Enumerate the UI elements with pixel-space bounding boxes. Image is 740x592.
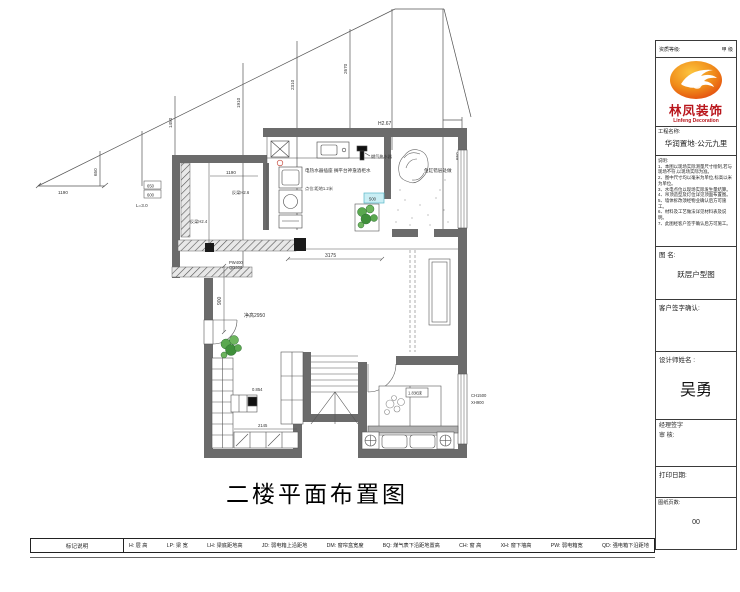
hatched-wall-vertical [181,163,190,237]
nightstand-right [437,432,454,449]
cyan-label: 500 [369,197,377,202]
project-section: 工程名称: 华润置地·公元九里 [656,127,736,156]
staircase [311,356,358,424]
legend-item: QD: 强电箱下沿距地 [602,542,649,549]
nightstand-left [362,432,379,449]
box-600: 600 [147,193,155,198]
designer-section: 设计师姓名 : 吴勇 [656,352,736,420]
phoenix-logo-icon [667,60,725,100]
logo-chinese-name: 林凤装饰 [656,105,736,118]
bathroom-window [458,150,467,228]
manager-signature-section: 经理签字 审 核: [656,420,736,467]
bath-fixture-sketch [399,150,428,183]
living-dim-w: 3175 [325,253,336,259]
qualification-label: 资质等级: [659,46,680,53]
dim-base: 1190 [58,190,68,195]
legend-title: 标记说明 [31,539,124,552]
column-kitchen [294,238,306,251]
window-note-xh: XH900 [471,400,484,405]
qd-note: QD300 [229,265,243,270]
note-line: 5、墙体拆改须经物业确认后方可施工。 [658,198,734,209]
beam-note-2: 反梁H2.6 [232,189,250,196]
project-label: 工程名称: [656,127,736,136]
wardrobe [281,352,303,424]
dim-h1: 650 [93,168,98,176]
bathroom-floor-dots [395,179,448,225]
dashed-partition [410,250,415,352]
legend-item: H: 层 高 [129,542,147,549]
title-block: 资质等级: 甲 级 林凤装饰 Linfeng Decoration 工程名称: … [655,40,737,550]
bathroom [395,150,448,226]
kitchen-note: 电热水器插座 搁平台神龛酒柜水 [305,167,371,174]
beam-note-1: 反梁H2.4 [190,218,208,225]
drawing-title: 二楼平面布置图 [226,475,408,509]
legend-item: LP: 梁 宽 [167,542,188,549]
legend-item: BQ: 煤气表下沿距地置高 [383,542,440,549]
pillow-right [410,435,435,448]
legend-item: XH: 窗下墙高 [501,542,532,549]
note-line: 2、图中尺寸均以毫米为单位,标高以米为单位。 [658,175,734,186]
bookshelf [212,358,233,448]
drawing-name-section: 图 名: 跃层户型图 [656,247,736,300]
bedroom-window [458,374,467,444]
notes-section: 说明: 1、本图以现场实际测量尺寸绘制,若与现场不符,以现场实际为准。 2、图中… [656,156,736,247]
designer-name: 吴勇 [656,376,736,400]
fish-tank-plant [355,204,379,231]
study-note: 0.854 [252,387,263,392]
bed-label: 1.8米床 [408,390,423,397]
box-650: 650 [147,184,155,189]
living-note: 净高2950 [244,312,265,319]
living-dim-h: 900 [217,296,223,305]
living-cabinet [429,259,450,325]
flue-box [271,141,289,166]
gas-label: 燃气热水器 [371,153,393,160]
window-note-ch: CH1500 [471,393,487,398]
print-date-section: 打印日期: [656,467,736,498]
legend-items: H: 层 高 LP: 梁 宽 LH: 梁底距地高 JD: 弱电箱上沿距地 DM:… [124,539,654,552]
cabinet-row [234,432,298,448]
pillow-left [382,435,407,448]
legend-strip: 标记说明 H: 层 高 LP: 梁 宽 LH: 梁底距地高 JD: 弱电箱上沿距… [30,538,655,553]
logo-english-name: Linfeng Decoration [656,118,736,124]
manager-signature-label: 经理签字 [659,422,733,432]
dim-h2: 1450 [168,117,173,128]
kitchen-note-2: 点位:距地1.2米 [305,185,334,192]
room-dim-1190: 1190 [226,170,236,175]
legend-item: PW: 弱电箱宽 [551,542,583,549]
customer-signature-label: 客户签字确认: [656,300,736,314]
hatched-band-living [178,240,296,251]
customer-signature-section: 客户签字确认: [656,300,736,352]
note-line: 1、本图以现场实际测量尺寸绘制,若与现场不符,以现场实际为准。 [658,164,734,175]
pages-label: 图纸页数: [656,498,736,507]
title-block-header: 资质等级: 甲 级 [656,41,736,58]
plant [221,336,242,359]
fish-note: 鱼缸错层处做 [424,167,452,174]
l30-note: L=3.0 [136,203,148,208]
note-line: 6、材料及工艺做法详见材料表及说明。 [658,209,734,220]
oven-stack [279,167,302,228]
legend-item: LH: 梁底距地高 [207,542,242,549]
kitchen-sink [317,142,349,158]
legend-item: CH: 窗 高 [459,542,481,549]
drawing-name-value: 跃层户型图 [656,269,736,280]
note-line: 7、此图经客户签字确认后方可施工。 [658,221,734,227]
desk [231,395,257,412]
dim-h4: 2310 [290,79,295,90]
designer-label: 设计师姓名 : [656,352,736,366]
dim-h5: 2670 [343,63,348,74]
column-storage [205,243,214,252]
legend-item: JD: 弱电箱上沿距地 [262,542,308,549]
stair-dim: 2145 [258,423,268,428]
dim-h3: 1910 [236,97,241,108]
qualification-grade: 甲 级 [722,46,733,53]
pages-section: 图纸页数: 00 [656,498,736,526]
company-logo-section: 林凤装饰 Linfeng Decoration [656,58,736,127]
drawing-name-label: 图 名: [656,247,736,261]
dim-apex: H2.67 [378,121,392,127]
legend-item: DM: 窗帘盒宽度 [327,542,364,549]
print-date-label: 打印日期: [656,467,736,481]
pages-value: 00 [656,519,736,526]
audit-label: 审 核: [659,432,733,442]
sheet-bottom-line [30,557,655,558]
project-name: 华润置地·公元九里 [656,138,736,149]
